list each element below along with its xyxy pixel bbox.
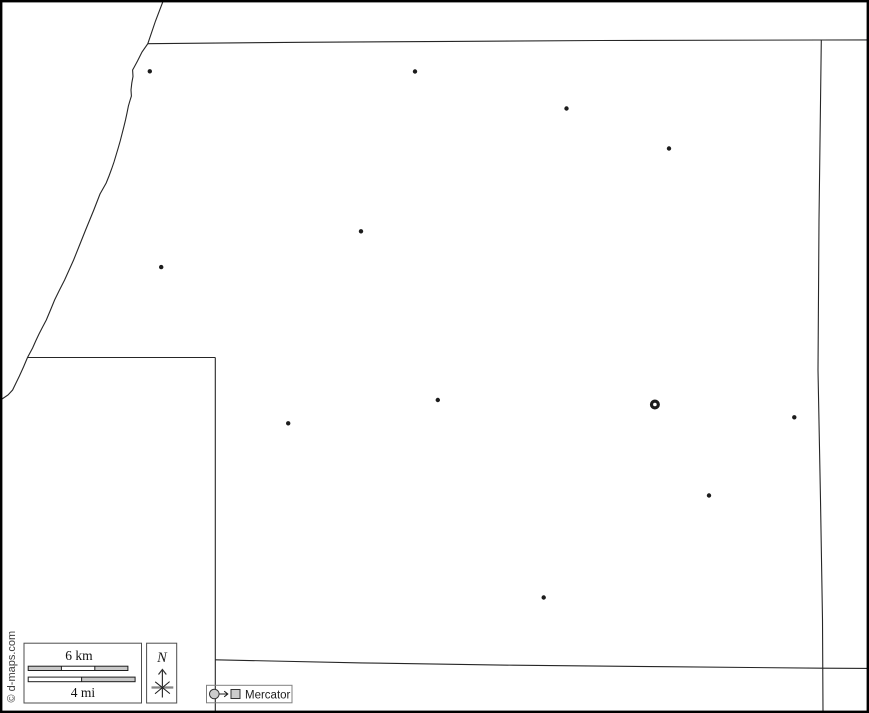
svg-text:6 km: 6 km <box>65 648 93 663</box>
svg-text:4 mi: 4 mi <box>71 685 96 700</box>
svg-text:Mercator: Mercator <box>245 690 291 702</box>
svg-text:© d-maps.com: © d-maps.com <box>6 631 18 703</box>
svg-text:N: N <box>156 650 168 666</box>
